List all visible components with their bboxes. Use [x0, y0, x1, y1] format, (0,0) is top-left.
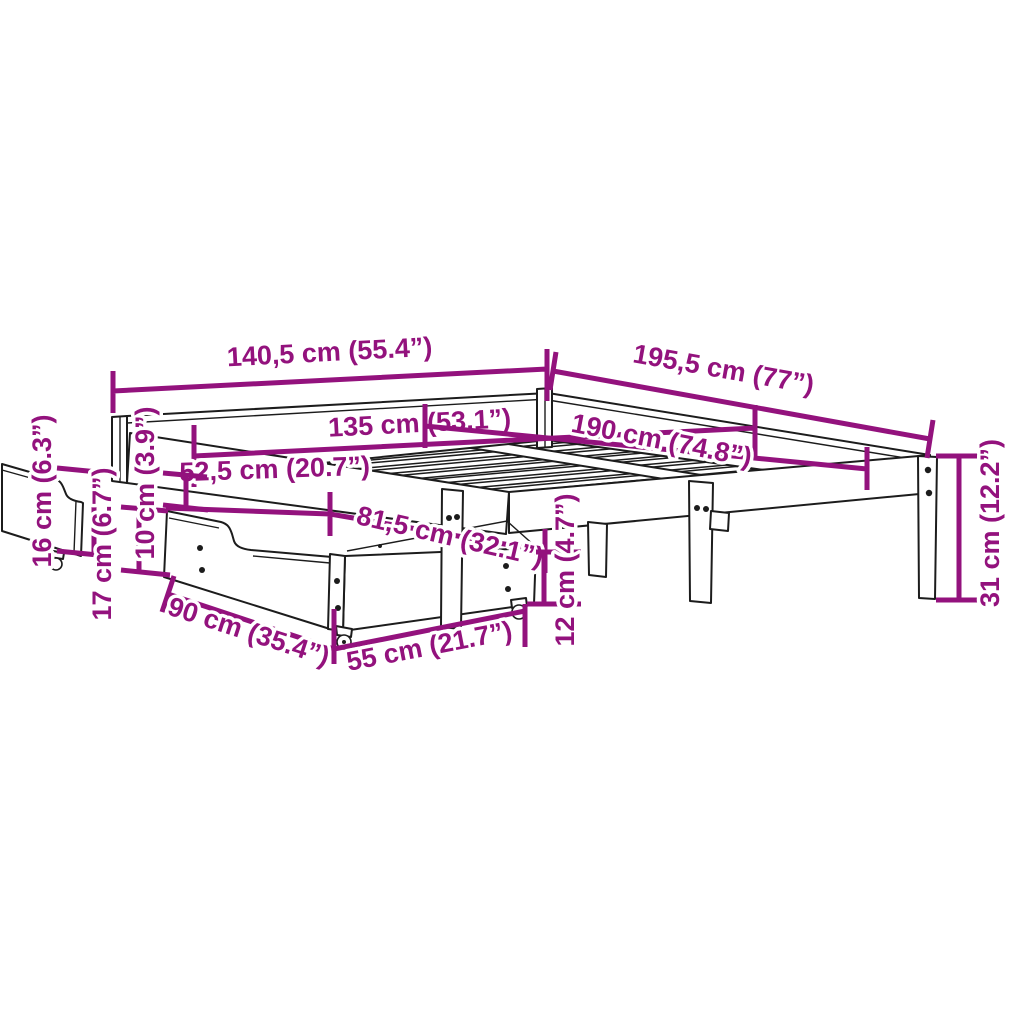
dim-drawer-total-height-label: 17 cm (6.7”) [87, 467, 117, 620]
dim-leg-height: 31 cm (12.2”) [936, 439, 1005, 607]
diagram-canvas: 140,5 cm (55.4”) 195,5 cm (77”) 135 cm (… [0, 0, 1024, 1024]
dim-rail-height-label: 10 cm (3.9”) [130, 406, 160, 559]
support-bracket [710, 511, 729, 531]
leg-foot-near [588, 522, 607, 577]
dim-leg-height-label: 31 cm (12.2”) [975, 439, 1005, 607]
leg-foot-far [918, 456, 937, 599]
leg-mid-far [689, 481, 713, 603]
leg-mid-near [441, 489, 463, 629]
dim-drawer-side-height-label: 12 cm (4.7”) [550, 493, 580, 646]
dim-overall-width-label: 140,5 cm (55.4”) [226, 332, 433, 373]
dim-underbed-clearance-label: 16 cm (6.3”) [27, 414, 57, 567]
bed-dimension-diagram: 140,5 cm (55.4”) 195,5 cm (77”) 135 cm (… [0, 0, 1024, 1024]
